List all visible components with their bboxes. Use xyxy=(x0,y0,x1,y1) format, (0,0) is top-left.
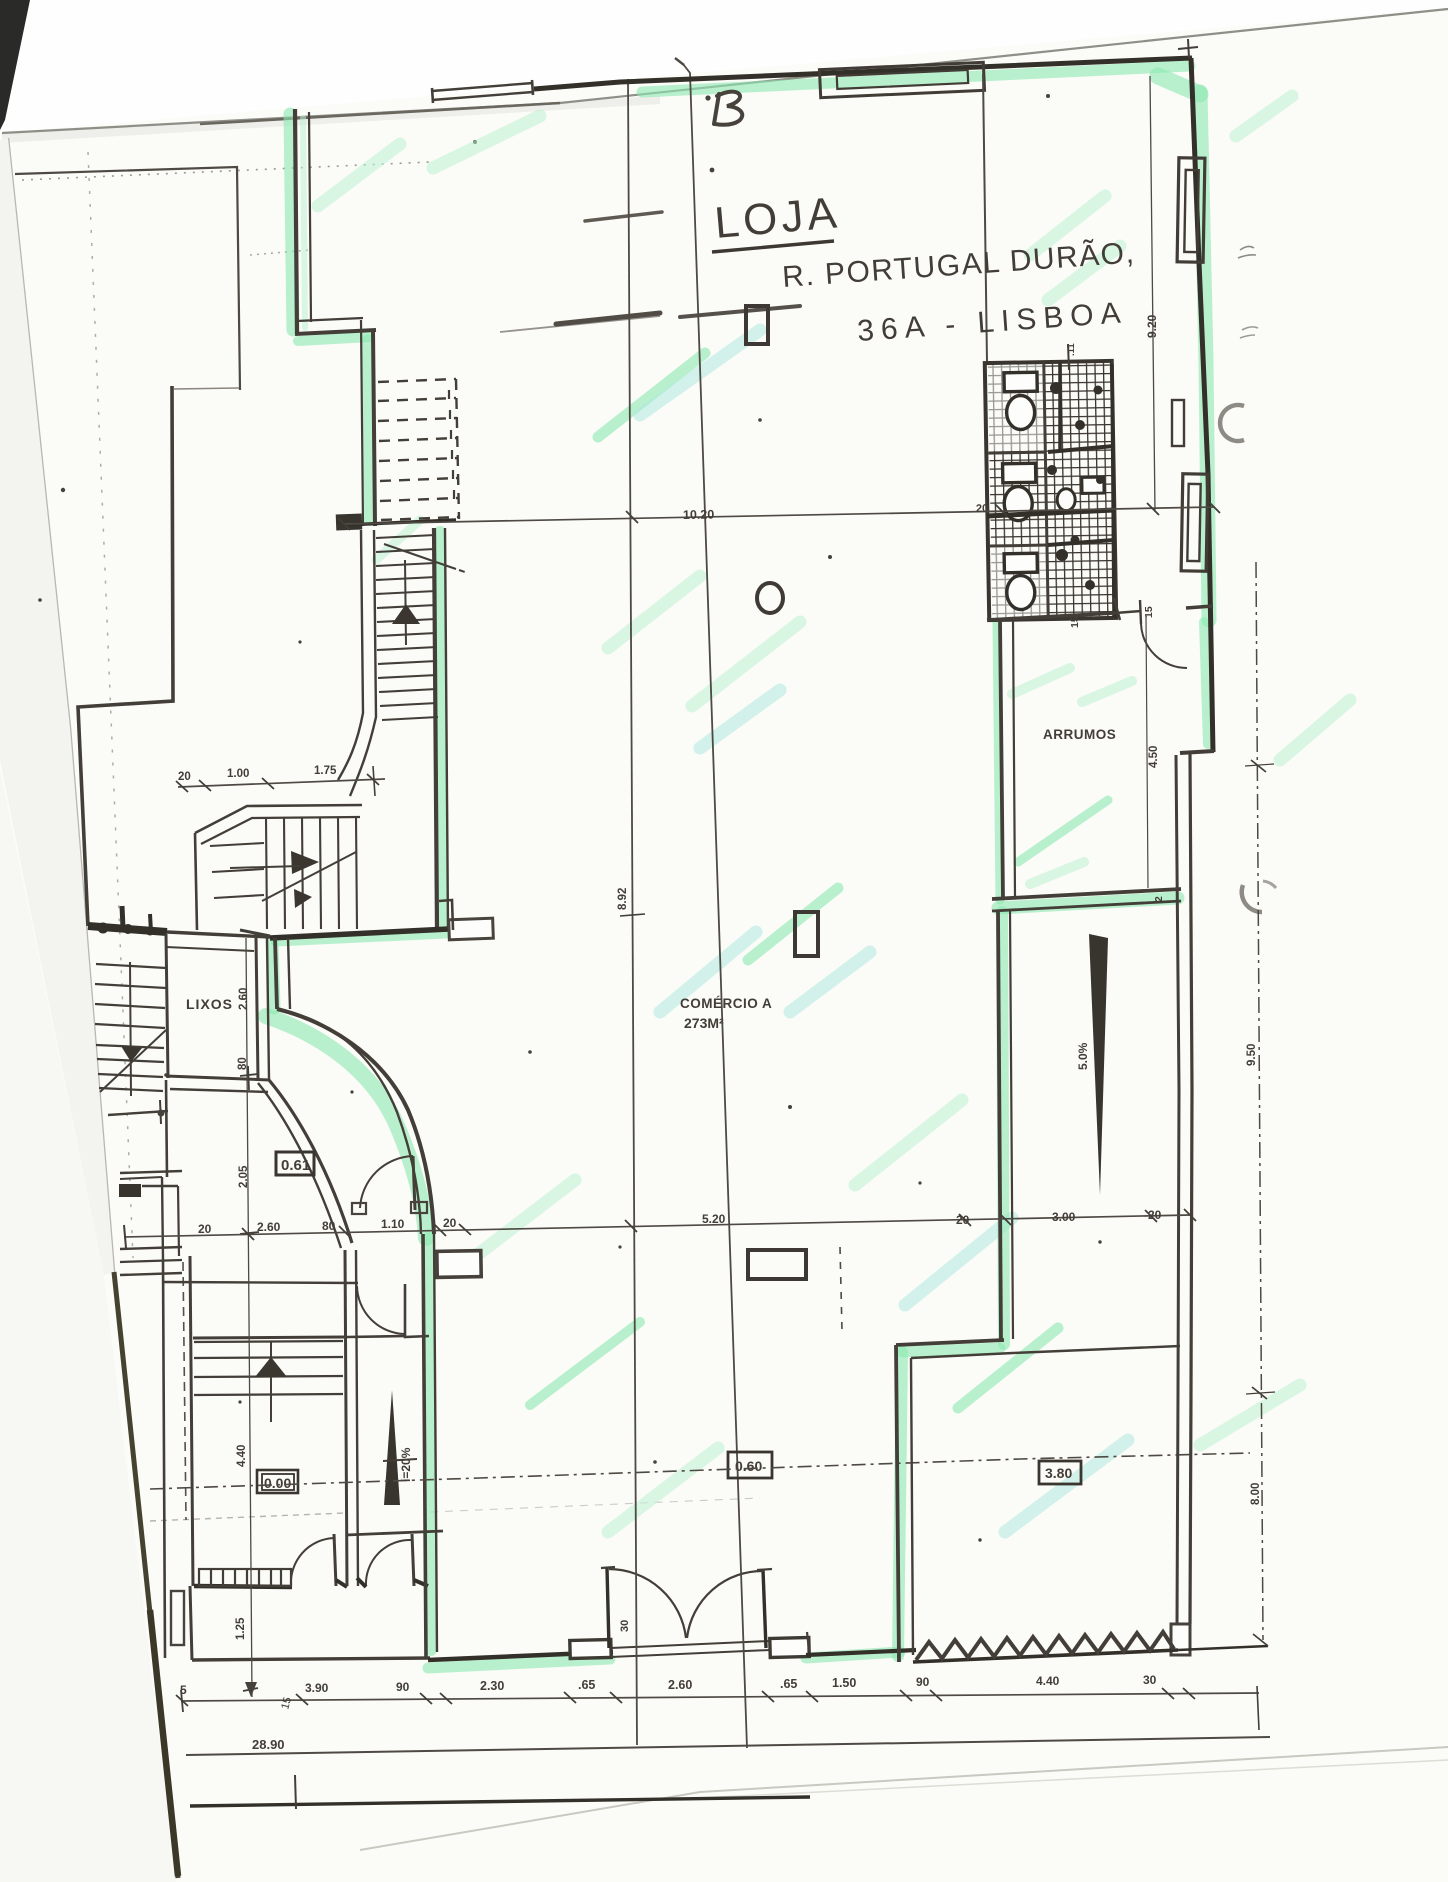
svg-text:2: 2 xyxy=(1153,896,1165,902)
svg-text:9.20: 9.20 xyxy=(1145,314,1159,338)
svg-text:2.60: 2.60 xyxy=(668,1678,692,1692)
svg-text:90: 90 xyxy=(916,1675,930,1689)
svg-text:ARRUMOS: ARRUMOS xyxy=(1043,727,1116,742)
svg-text:5: 5 xyxy=(180,1683,187,1697)
svg-text:1.75: 1.75 xyxy=(314,765,337,777)
svg-text:0.61: 0.61 xyxy=(281,1157,310,1174)
svg-text:80: 80 xyxy=(322,1219,336,1233)
svg-text:90: 90 xyxy=(396,1680,410,1694)
svg-text:30: 30 xyxy=(619,1620,631,1632)
svg-text:3.00: 3.00 xyxy=(1052,1210,1076,1224)
svg-text:0.00: 0.00 xyxy=(264,1475,291,1491)
svg-text:1.50: 1.50 xyxy=(832,1676,856,1690)
svg-text:5.0%: 5.0% xyxy=(1076,1042,1090,1070)
svg-text:2.30: 2.30 xyxy=(480,1679,504,1693)
svg-text:4.50: 4.50 xyxy=(1148,746,1160,768)
svg-text:LIXOS: LIXOS xyxy=(186,996,233,1012)
svg-text:2.60: 2.60 xyxy=(257,1220,281,1234)
svg-text:2.60: 2.60 xyxy=(238,988,250,1010)
svg-text:4.40: 4.40 xyxy=(236,1445,248,1467)
svg-text:1.00: 1.00 xyxy=(227,768,249,780)
svg-text:.65: .65 xyxy=(780,1677,797,1691)
svg-text:8.00: 8.00 xyxy=(1250,1483,1262,1505)
svg-text:10.20: 10.20 xyxy=(683,507,715,522)
svg-text:20: 20 xyxy=(1148,1208,1162,1222)
svg-text:80: 80 xyxy=(237,1057,249,1070)
svg-text:2.05: 2.05 xyxy=(238,1165,250,1188)
svg-text:20: 20 xyxy=(976,503,988,515)
svg-text:.11: .11 xyxy=(1066,343,1077,356)
svg-text:.65: .65 xyxy=(578,1678,595,1692)
svg-text:20: 20 xyxy=(178,771,191,783)
svg-text:1.25: 1.25 xyxy=(235,1617,247,1640)
svg-text:8.92: 8.92 xyxy=(617,888,629,910)
svg-text:15: 15 xyxy=(1069,616,1081,628)
svg-text:20: 20 xyxy=(956,1213,970,1227)
svg-text:20: 20 xyxy=(443,1216,457,1230)
svg-text:5.20: 5.20 xyxy=(702,1212,726,1226)
svg-text:30: 30 xyxy=(1143,1673,1157,1687)
svg-text:15: 15 xyxy=(1143,606,1155,618)
svg-text:20: 20 xyxy=(198,1222,212,1236)
svg-text:1.10: 1.10 xyxy=(381,1217,405,1231)
svg-text:3.90: 3.90 xyxy=(305,1681,329,1695)
svg-text:273M²: 273M² xyxy=(684,1015,724,1031)
svg-text:COMÉRCIO A: COMÉRCIO A xyxy=(680,996,772,1011)
svg-text:i=20%: i=20% xyxy=(399,1447,413,1482)
svg-text:3.80: 3.80 xyxy=(1045,1465,1072,1481)
svg-text:9.50: 9.50 xyxy=(1246,1044,1258,1066)
svg-text:4.40: 4.40 xyxy=(1036,1674,1060,1688)
svg-text:0.60: 0.60 xyxy=(735,1458,762,1474)
svg-text:28.90: 28.90 xyxy=(252,1737,285,1752)
